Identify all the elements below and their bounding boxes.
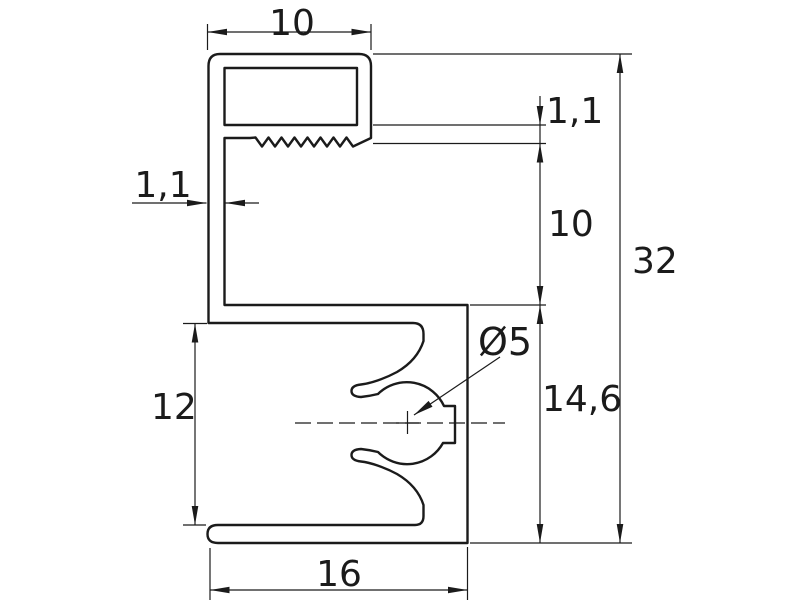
arrowhead-left	[226, 200, 246, 207]
dimension-top-width: 10	[208, 3, 372, 50]
arrowhead-up	[192, 324, 199, 343]
dim-bottom-width-label: 16	[316, 554, 362, 595]
dim-body-height-label: 14,6	[542, 379, 622, 420]
dimension-hole-diameter: Ø5	[414, 320, 532, 415]
leader-arrowhead	[414, 401, 433, 415]
dim-hole-diameter-label: Ø5	[478, 320, 532, 364]
dim-total-height-label: 32	[632, 241, 678, 282]
profile-drawing: 10 1,1 1,1 10 14,6 32 12	[0, 0, 800, 600]
dimension-bottom-width: 16	[210, 547, 468, 600]
dim-wall-thickness-label: 1,1	[134, 165, 191, 206]
drawing-canvas: 10 1,1 1,1 10 14,6 32 12	[0, 0, 800, 600]
dimension-total-height: 32	[617, 54, 678, 543]
profile-outline	[208, 54, 468, 543]
arrowhead-down	[537, 106, 544, 125]
hollow-chamber	[225, 68, 358, 125]
arrowhead-right	[448, 587, 468, 594]
dim-opening-height-label: 12	[151, 387, 197, 428]
dim-top-width-label: 10	[269, 3, 315, 44]
arrowhead-left	[208, 29, 228, 36]
arrowhead-up	[617, 54, 624, 73]
arrowhead-down	[617, 524, 624, 543]
profile	[208, 54, 468, 543]
arrowhead-down	[192, 506, 199, 525]
arrowhead-left	[210, 587, 230, 594]
arrowhead-down	[537, 524, 544, 543]
arrowhead-down	[537, 286, 544, 305]
dimension-opening-height: 12	[151, 324, 207, 526]
dimension-wall-thickness: 1,1	[132, 165, 259, 206]
dimension-right-stack: 1,1 10 14,6	[373, 54, 632, 543]
arrowhead-right	[352, 29, 372, 36]
centerline-group	[295, 411, 505, 434]
arrowhead-up	[537, 144, 544, 163]
arrowhead-up	[537, 305, 544, 324]
dim-hook-depth-label: 10	[548, 204, 594, 245]
dim-lip-thickness-label: 1,1	[546, 91, 603, 132]
